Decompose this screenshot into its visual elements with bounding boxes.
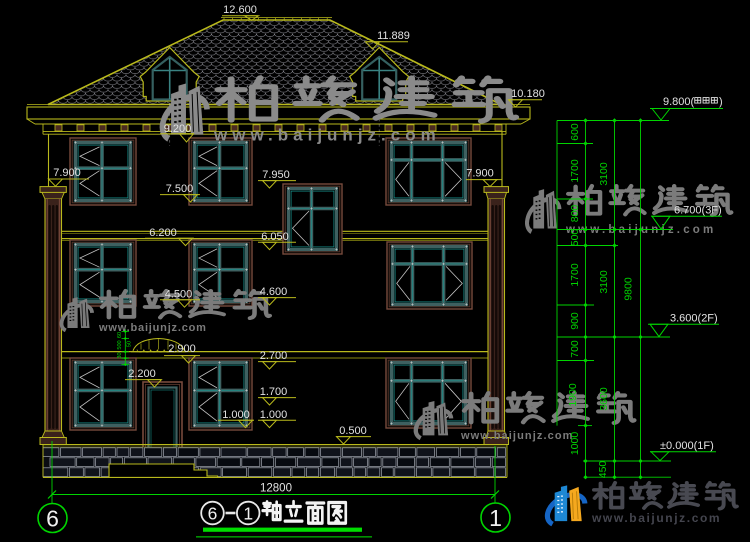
svg-text:1700: 1700 bbox=[569, 263, 581, 287]
svg-text:11.889: 11.889 bbox=[377, 30, 410, 42]
svg-text:3100: 3100 bbox=[598, 162, 610, 186]
svg-text:50: 50 bbox=[127, 341, 133, 347]
svg-text:www.baijunjz.com: www.baijunjz.com bbox=[591, 511, 721, 525]
svg-text:9.200: 9.200 bbox=[164, 123, 192, 135]
svg-text:9.800(: 9.800( bbox=[663, 96, 695, 108]
svg-text:10.180: 10.180 bbox=[511, 88, 545, 100]
svg-text:): ) bbox=[719, 96, 723, 108]
svg-text:500: 500 bbox=[117, 340, 123, 349]
svg-text:2.200: 2.200 bbox=[128, 368, 156, 380]
svg-text:1000: 1000 bbox=[569, 432, 581, 456]
svg-text:500: 500 bbox=[569, 229, 581, 247]
svg-text:6: 6 bbox=[46, 506, 59, 532]
svg-text:700: 700 bbox=[569, 340, 581, 358]
svg-text:900: 900 bbox=[569, 312, 581, 330]
svg-text:6.200: 6.200 bbox=[149, 227, 177, 239]
svg-text:7.900: 7.900 bbox=[53, 167, 81, 179]
svg-text:12.600: 12.600 bbox=[223, 4, 257, 16]
svg-text:1: 1 bbox=[243, 504, 253, 524]
svg-text:450: 450 bbox=[597, 461, 609, 479]
svg-text:3100: 3100 bbox=[598, 270, 610, 294]
svg-text:www.baijunjz.com: www.baijunjz.com bbox=[98, 322, 207, 334]
svg-text:7.500: 7.500 bbox=[166, 183, 194, 195]
svg-text:2.700: 2.700 bbox=[260, 350, 288, 362]
svg-text:1.700: 1.700 bbox=[260, 386, 288, 398]
svg-text:www.baijunjz.com: www.baijunjz.com bbox=[213, 126, 441, 145]
svg-text:7.950: 7.950 bbox=[262, 169, 290, 181]
svg-text:12800: 12800 bbox=[260, 483, 292, 495]
svg-text:1.000: 1.000 bbox=[260, 409, 288, 421]
svg-text:800: 800 bbox=[569, 205, 581, 223]
svg-text:7.900: 7.900 bbox=[466, 167, 494, 179]
svg-text:3600: 3600 bbox=[598, 387, 610, 411]
svg-text:3.600(2F): 3.600(2F) bbox=[670, 312, 718, 324]
svg-text:4.500: 4.500 bbox=[165, 289, 193, 301]
svg-text:2.900: 2.900 bbox=[168, 343, 196, 355]
svg-text:0.500: 0.500 bbox=[339, 425, 367, 437]
svg-text:1.000: 1.000 bbox=[222, 409, 250, 421]
svg-text:www.baijunjz.com: www.baijunjz.com bbox=[460, 430, 574, 442]
svg-text:4.600: 4.600 bbox=[260, 286, 288, 298]
svg-text:600: 600 bbox=[569, 123, 581, 141]
svg-text:30: 30 bbox=[117, 352, 123, 358]
svg-text:1700: 1700 bbox=[569, 159, 581, 183]
svg-text:6.050: 6.050 bbox=[261, 231, 289, 243]
svg-text:1900: 1900 bbox=[567, 383, 579, 407]
svg-text:6.700(3F): 6.700(3F) bbox=[674, 205, 722, 217]
svg-text:1: 1 bbox=[489, 505, 502, 531]
svg-text:6: 6 bbox=[208, 504, 218, 524]
svg-text:±0.000(1F): ±0.000(1F) bbox=[660, 440, 714, 452]
svg-text:9800: 9800 bbox=[623, 277, 635, 301]
